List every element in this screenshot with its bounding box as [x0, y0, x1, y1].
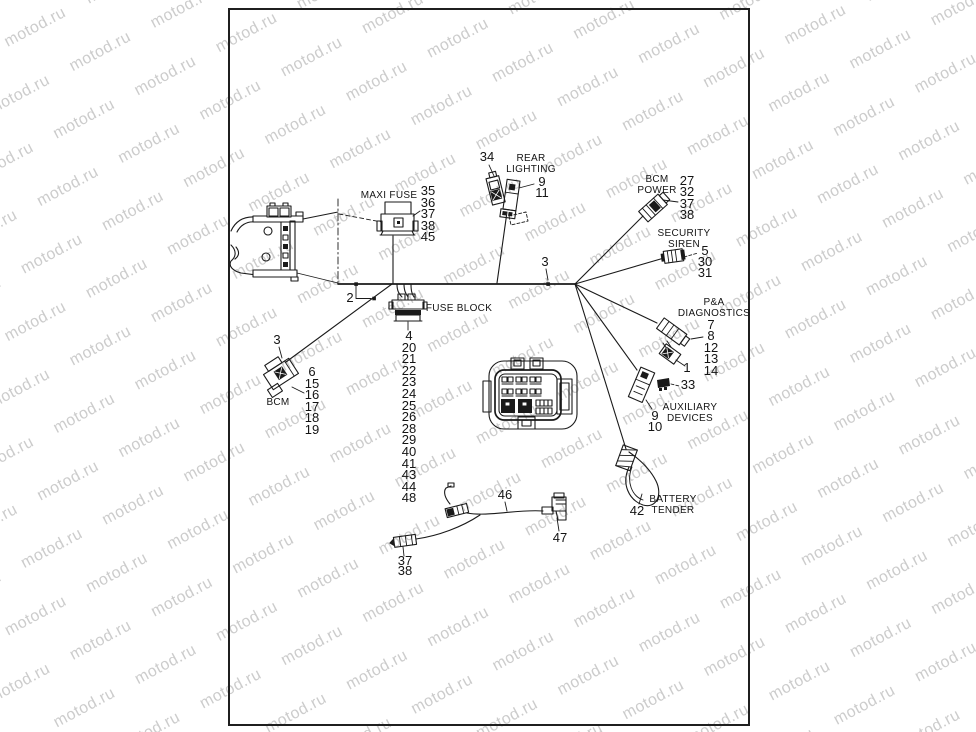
callout-47: 47: [553, 532, 567, 543]
auxiliary-devices-connector-icon: [628, 367, 654, 402]
callout-33: 33: [681, 379, 695, 390]
callout-1: 1: [683, 362, 690, 373]
callout-number: 38: [680, 209, 694, 220]
dashed-leader-maxifuse: [339, 214, 387, 223]
central-connector-icon: [483, 358, 577, 429]
security-siren-callouts: 53031: [698, 245, 712, 278]
fuse-block-callouts: 42021222324252628294041434448: [402, 330, 416, 504]
callout-number: 14: [704, 365, 718, 376]
rear-lighting-label: REAR LIGHTING: [506, 153, 556, 175]
callout-number: 11: [535, 188, 549, 199]
callout-3-bcm: 3: [273, 334, 280, 345]
callout-42: 42: [630, 505, 644, 516]
connector-47-icon: [542, 493, 566, 520]
cable-end-callouts: 3738: [398, 556, 412, 577]
rear-lighting-callouts: 911: [535, 177, 549, 198]
rear-lighting-connector-34-icon: [485, 171, 505, 205]
fuse-block-label: FUSE BLOCK: [426, 303, 492, 314]
pa-diagnostics-connector-icon: [657, 318, 691, 348]
callout-number: 45: [421, 231, 435, 243]
rear-lighting-connector-911-icon: [500, 179, 520, 219]
callout-46: 46: [498, 489, 512, 500]
callout-number: 48: [402, 492, 416, 504]
leader-siren: [684, 253, 698, 257]
leader-34: [489, 165, 494, 176]
battery-tender-label: BATTERY TENDER: [649, 494, 696, 516]
bcm-label: BCM: [266, 397, 289, 408]
bcm-callouts: 61516171819: [305, 366, 319, 435]
main-harness-wires: [286, 212, 664, 449]
callout-2: 2: [346, 292, 353, 303]
leader-8: [691, 337, 703, 339]
fuse-block-icon: [389, 284, 427, 330]
maxi-fuse-callouts: 3536373845: [421, 185, 435, 243]
callout-number: 31: [698, 267, 712, 278]
pa-diagnostics-callouts: 78121314: [704, 319, 718, 376]
connector-3738-icon: [388, 534, 416, 548]
harness-diagram-art: [0, 0, 976, 732]
callout-34: 34: [480, 151, 494, 162]
leader-9-11: [519, 184, 534, 188]
auxiliary-devices-callouts: 910: [648, 410, 662, 432]
leader-33: [671, 384, 679, 386]
callout-3-trunk: 3: [541, 256, 548, 267]
maxi-fuse-label: MAXI FUSE: [361, 190, 418, 201]
auxiliary-devices-label: AUXILIARY DEVICES: [663, 402, 718, 424]
maxi-fuse-connector-icon: [377, 202, 420, 235]
callout-number: 38: [398, 566, 412, 576]
pa-diagnostics-label: P&A DIAGNOSTICS: [678, 297, 750, 319]
bcm-power-label: BCM POWER: [637, 174, 676, 196]
callout-number: 10: [648, 421, 662, 432]
catalog-page: motod.rumotod.rumotod.rumotod.rumotod.ru…: [0, 0, 976, 732]
bcm-power-callouts: 27323738: [680, 175, 694, 220]
callout-number: 19: [305, 424, 319, 436]
frame-bracket-art: [230, 203, 338, 283]
connector-33-icon: [657, 378, 670, 391]
security-siren-connector-icon: [660, 249, 685, 264]
